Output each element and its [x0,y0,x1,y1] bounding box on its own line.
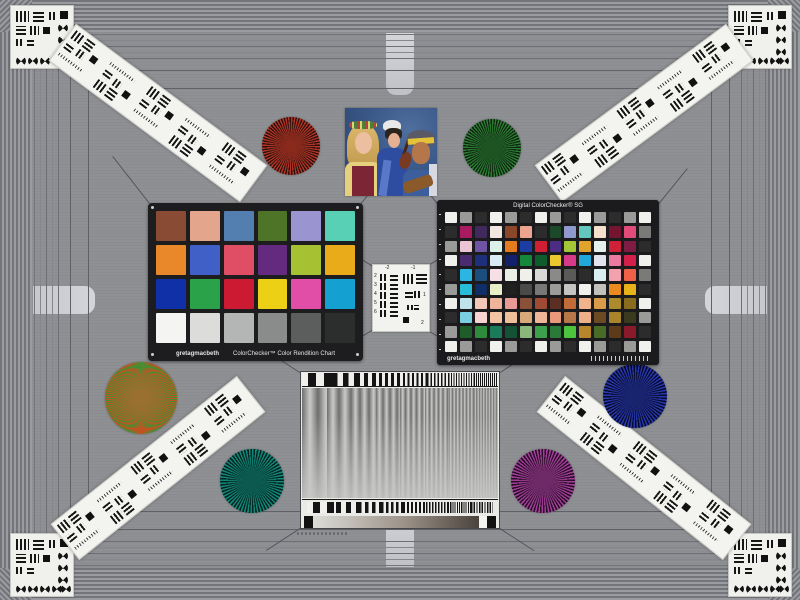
sg-patch [520,226,532,237]
resolution-bars [748,26,757,35]
sg-patch [564,326,576,337]
sg-patch [460,341,472,352]
usaf-number: 1 [423,293,426,298]
sg-patch [520,312,532,323]
microtext-row [185,118,211,138]
resolution-bars [625,452,637,464]
sg-patch [445,284,457,295]
resolution-strip-top-right [535,24,754,203]
black-square [85,512,95,522]
bezel-screw [356,206,359,209]
black-square [688,78,698,88]
sg-patch [550,284,562,295]
sg-patch [639,284,651,295]
quadrant-circle [776,23,786,33]
black-square [778,539,786,547]
cc24-patch [291,211,321,241]
resolution-bars [416,274,427,284]
bar-segment [308,373,332,386]
cc24-patch [258,279,288,309]
sg-patch [564,269,576,280]
resolution-bars [139,472,151,484]
resolution-bars [644,450,658,464]
sg-patch [490,212,502,223]
resolution-bars [405,291,413,298]
sg-patch [520,241,532,252]
frequency-sweep-chart [300,371,500,529]
quadrant-circle [758,56,768,66]
cc24-patch [190,279,220,309]
black-square [608,444,618,454]
black-square [43,27,50,34]
bar-segment [471,502,494,513]
resolution-bars [187,436,198,447]
resolution-bars [16,539,29,550]
sg-patch [490,255,502,266]
gradient-end-square [304,516,313,528]
sg-patch [579,326,591,337]
sg-patch [505,212,517,223]
sg-patch [639,326,651,337]
black-square [232,395,242,405]
sg-patch [460,212,472,223]
sg-patch [520,284,532,295]
black-square [645,98,655,108]
figure-left-vest [352,166,374,196]
striped-border-right [768,32,800,568]
resolution-bars [751,11,762,22]
sg-patch [594,226,606,237]
sg-patch [550,269,562,280]
black-square [60,11,68,19]
resolution-bars [699,510,711,522]
siemens-star-blue [603,364,667,428]
colorchecker-24-label: gretagmacbeth ColorChecker™ Color Rendit… [148,350,363,358]
sg-patch [535,269,547,280]
bar-segment [403,502,426,513]
sg-patch [579,312,591,323]
sg-patch [624,312,636,323]
sg-patch [535,298,547,309]
microtext-row [633,116,659,136]
resolution-bars [157,94,171,108]
sg-patch [535,326,547,337]
resolution-bars [560,164,571,175]
corner-resolution-target-bottom-right [728,533,792,597]
resolution-bars [748,554,757,563]
bezel-screw [151,353,154,356]
sg-patch [564,341,576,352]
black-square [720,42,730,52]
sg-patch [460,312,472,323]
resolution-bars [82,38,96,52]
bar-segment [427,373,451,386]
sg-patch [520,298,532,309]
resolution-bars [179,143,193,157]
resolution-bars [588,423,600,435]
cc24-patch [291,245,321,275]
resolution-bars [414,291,421,298]
cc24-patch [258,245,288,275]
quadrant-circle [734,584,744,594]
resolution-bars [403,274,414,284]
resolution-bars [599,138,610,149]
sg-patch [490,241,502,252]
sg-patch [550,326,562,337]
resolution-bars [76,522,87,533]
quadrant-circle [61,584,71,594]
sg-patch [505,269,517,280]
cc24-patch [325,313,355,343]
sg-patch [624,226,636,237]
black-square [569,154,579,164]
resolution-bars [151,105,162,116]
sg-patch [609,284,621,295]
sg-patch [550,241,562,252]
sg-patch [609,298,621,309]
resolution-bars [414,305,419,310]
resolution-bars [223,405,234,416]
sg-patch [445,255,457,266]
cc24-patch [224,279,254,309]
sg-patch [609,241,621,252]
sg-patch [579,255,591,266]
gradient-ramp [313,516,479,528]
sg-patch [475,255,487,266]
usaf-number: -1 [411,266,415,271]
quadrant-circle [16,56,26,66]
sg-patch [475,312,487,323]
resolution-bars [101,69,113,81]
resolution-bars [112,78,123,89]
resolution-bars [549,173,561,185]
quadrant-circle [28,56,38,66]
sg-patch [475,284,487,295]
resolution-bars [102,502,114,514]
cc24-patch [156,313,186,343]
siemens-star-red-green [105,362,177,434]
cc24-patch [190,245,220,275]
sg-patch [609,255,621,266]
resolution-bars [390,292,398,299]
sg-patch [445,312,457,323]
sg-patch [520,212,532,223]
sg-patch [639,269,651,280]
sg-patch [594,312,606,323]
figure-right-face [412,142,430,164]
resolution-bars [226,161,237,172]
resolution-bars [33,539,44,550]
bezel-screw [151,206,154,209]
sg-patch [505,255,517,266]
sg-patch [609,269,621,280]
sg-patch [475,269,487,280]
microtext-row [109,62,135,82]
quadrant-circle [58,23,68,33]
sg-patch [639,212,651,223]
microtext-row [74,529,99,550]
sg-patch [609,326,621,337]
resolution-bars [149,463,160,474]
sg-patch [624,241,636,252]
sg-patch [490,269,502,280]
quadrant-circle [776,35,786,45]
bar-segment [448,502,471,513]
quadrant-circle [776,563,786,573]
resolution-bars [27,39,34,46]
resolution-bars [591,441,605,455]
sg-patch [624,212,636,223]
black-square [650,466,660,476]
sg-patch [594,269,606,280]
quadrant-circle [758,584,768,594]
microtext-row [558,172,584,192]
black-square [158,453,168,463]
resolution-bars [63,41,75,53]
resolution-bars [380,292,388,299]
sg-patch [609,212,621,223]
sg-patch [505,298,517,309]
sg-patch [579,284,591,295]
resolution-bars [625,117,637,129]
sg-patch [564,298,576,309]
sweep-fade-overlay [302,388,498,498]
sg-patch [520,326,532,337]
cc24-patch [258,313,288,343]
colorchecker-sg-brand: gretagmacbeth [447,355,490,363]
black-square [778,11,786,19]
resolution-bars [700,61,712,73]
sg-patch [579,241,591,252]
striped-border-left [0,32,32,568]
sg-patch [520,341,532,352]
bar-segment [403,373,427,386]
resolution-bars [380,310,388,317]
sg-patch [624,326,636,337]
colorchecker-sg-chart: Digital ColorChecker® SG gretagmacbeth [437,200,659,365]
connector-line [658,168,688,204]
usaf-number: 2 [421,321,424,326]
bar-segment [379,373,403,386]
quadrant-circle [40,584,50,594]
siemens-star-green [463,119,521,177]
sg-row-markers [439,214,441,351]
sg-patch [460,326,472,337]
resolution-bars [16,567,24,574]
siemens-star-teal [220,449,284,513]
cc24-patch [156,245,186,275]
sg-patch [460,226,472,237]
usaf-1951-target: -2 -1 2 3 4 5 6 1 2 [372,264,430,332]
resolution-bars [139,97,151,109]
sg-patch [475,212,487,223]
connector-line [266,528,301,551]
black-square [43,555,50,562]
resolution-bars [380,274,388,281]
black-square [240,167,250,177]
black-square [121,90,131,100]
resolution-bars [734,11,747,22]
black-square [724,525,734,535]
resolution-bars [75,49,86,60]
resolution-bars [734,567,742,574]
sg-patch [579,298,591,309]
usaf-number: -2 [385,266,389,271]
bar-segment [426,502,449,513]
connector-line [499,528,534,551]
resolution-bars [745,39,752,46]
sg-patch [490,226,502,237]
sg-patch [460,298,472,309]
colorchecker-sg-title: Digital ColorChecker® SG [437,202,659,210]
resolution-bars [734,554,744,563]
quadrant-circle [779,584,789,594]
resolution-bars [380,283,388,290]
black-square [612,133,622,143]
bar-segment [313,502,336,513]
sg-patch [445,241,457,252]
siemens-star-magenta [511,449,575,513]
colorchecker-24-chart: gretagmacbeth ColorChecker™ Color Rendit… [148,203,363,361]
quadrant-circle [779,56,789,66]
usaf-number: 5 [374,301,377,306]
microtext-row [148,470,173,491]
cc24-patch [325,211,355,241]
sg-patch [594,326,606,337]
registration-tab-right [705,286,767,314]
sg-patch [550,341,562,352]
bar-segment [451,373,475,386]
resolution-bars [49,12,57,20]
sg-patch [535,341,547,352]
sg-patch [505,312,517,323]
sg-patch [594,241,606,252]
resolution-bars [664,499,678,513]
figure-middle-face [388,133,400,148]
resolution-bars [663,89,675,101]
sg-patch [594,212,606,223]
resolution-bars [213,414,225,426]
cc24-patch [156,211,186,241]
resolution-bars [16,39,24,46]
quadrant-circle [58,563,68,573]
sweep-divider-line [302,499,498,500]
cc24-patch [190,211,220,241]
resolution-bars [30,26,39,35]
microtext-row [709,60,735,80]
portrait-photo [345,108,437,196]
sg-patch [520,255,532,266]
resolution-bars [114,494,125,505]
iso-test-chart-scene: gretagmacbeth ColorChecker™ Color Rendit… [0,0,800,600]
sg-patch [639,341,651,352]
bar-segment [336,502,359,513]
sg-patch [579,226,591,237]
colorchecker-24-grid [156,211,355,343]
sg-patch [609,312,621,323]
sg-patch [490,312,502,323]
sg-patch [639,255,651,266]
cc24-patch [224,211,254,241]
resolution-bars [563,401,574,412]
sg-patch [639,312,651,323]
resolution-bars [662,481,674,493]
sg-patch [475,341,487,352]
black-square [201,431,211,441]
sg-patch [639,226,651,237]
sg-patch [490,341,502,352]
sweep-top-bar-pattern [302,373,498,386]
resolution-bars [177,125,189,137]
registration-tab-left [33,286,95,314]
sg-patch [505,226,517,237]
resolution-bars [745,567,752,574]
black-square [89,55,99,65]
sg-patch [490,284,502,295]
sg-patch [445,341,457,352]
sg-patch [445,298,457,309]
sg-patch [445,212,457,223]
sg-patch [475,326,487,337]
cc24-patch [325,279,355,309]
resolution-bars [552,393,564,405]
resolution-bars [16,26,26,35]
bar-segment [332,373,356,386]
sg-patch [505,341,517,352]
resolution-bars [66,531,78,543]
sg-patch [445,326,457,337]
quadrant-circle [776,551,786,561]
black-square [127,489,137,499]
bezel-screw [356,353,359,356]
sg-patch [535,312,547,323]
sg-patch [594,284,606,295]
sg-patch [550,212,562,223]
resolution-bars [30,554,39,563]
resolution-bars [233,150,247,164]
sg-patch [535,255,547,266]
quadrant-circle [746,584,756,594]
sg-patch [624,255,636,266]
sg-patch [564,226,576,237]
resolution-bars [767,12,775,20]
gradient-end-square [487,516,496,528]
resolution-bars [767,540,775,548]
resolution-bars [674,82,685,93]
bar-segment [356,373,380,386]
colorchecker-24-title: ColorChecker™ Color Rendition Chart [233,350,335,358]
resolution-bars [27,567,34,574]
sg-patch [550,226,562,237]
grayscale-gradient-bar [304,516,496,528]
sg-patch [460,284,472,295]
sg-patch [579,212,591,223]
sg-patch [505,241,517,252]
figure-left-face [355,132,372,154]
figure-left-flower-wreath [349,121,377,129]
sg-patch [520,269,532,280]
sg-patch [624,341,636,352]
striped-border-bottom [32,568,768,600]
black-square [761,555,768,562]
black-square [197,146,207,156]
sg-patch [579,269,591,280]
usaf-number: 3 [374,283,377,288]
sg-ruler-marks [591,356,649,361]
quadrant-circle [16,584,26,594]
gradient-white-gap [479,516,487,528]
sg-patch [594,298,606,309]
